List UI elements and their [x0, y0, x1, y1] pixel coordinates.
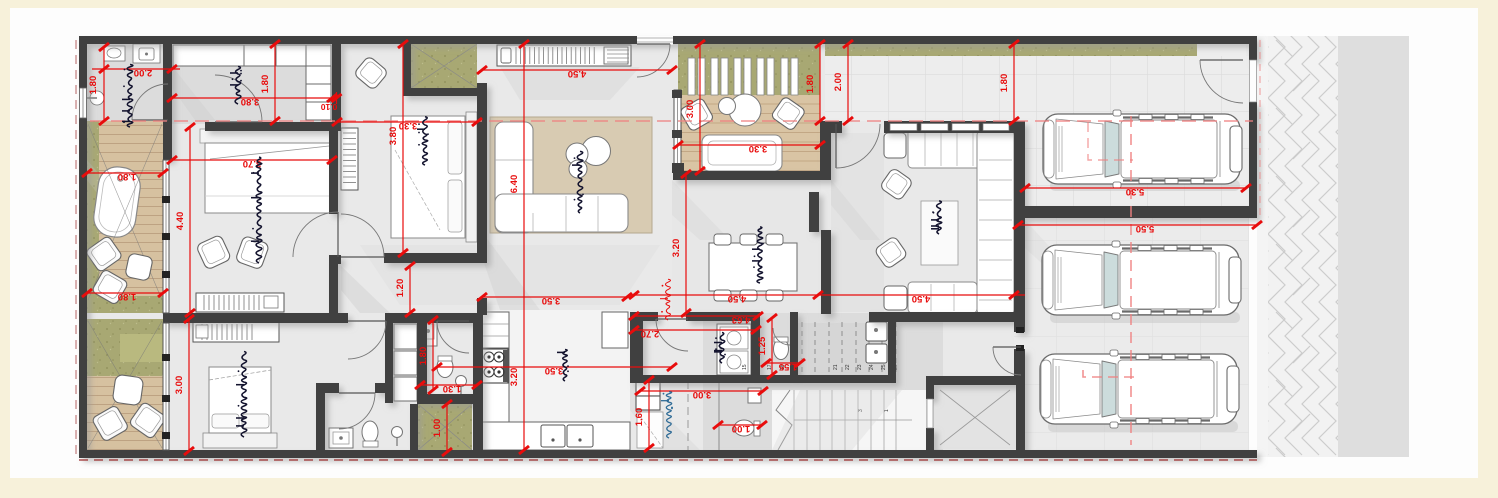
svg-text:3.00: 3.00 — [685, 100, 696, 119]
svg-text:3.00: 3.00 — [693, 389, 712, 400]
svg-text:2.00: 2.00 — [833, 73, 844, 92]
svg-text:1.80: 1.80 — [118, 291, 137, 302]
svg-text:1.55: 1.55 — [778, 361, 797, 372]
svg-text:1.60: 1.60 — [634, 408, 645, 427]
svg-text:2.70: 2.70 — [641, 328, 660, 339]
svg-text:4.50: 4.50 — [912, 293, 931, 304]
svg-text:3.80: 3.80 — [241, 96, 260, 107]
svg-text:4.50: 4.50 — [728, 293, 747, 304]
svg-text:3.50: 3.50 — [545, 365, 564, 376]
svg-text:1.80: 1.80 — [805, 75, 816, 94]
svg-text:1.25: 1.25 — [757, 336, 768, 355]
svg-text:3.30: 3.30 — [399, 120, 418, 131]
svg-text:21: 21 — [833, 364, 839, 370]
svg-text:2.00: 2.00 — [134, 67, 153, 78]
svg-text:1.80: 1.80 — [88, 76, 99, 95]
svg-text:1.00: 1.00 — [732, 423, 751, 434]
svg-text:22: 22 — [845, 364, 851, 370]
svg-text:1.80: 1.80 — [118, 171, 137, 182]
svg-text:5.30: 5.30 — [1126, 186, 1145, 197]
svg-text:1.00: 1.00 — [432, 419, 443, 438]
svg-text:25: 25 — [881, 364, 887, 370]
svg-text:3.80: 3.80 — [388, 127, 399, 146]
svg-text:1.80: 1.80 — [999, 74, 1010, 93]
svg-text:4.40: 4.40 — [175, 212, 186, 231]
svg-text:24: 24 — [869, 364, 875, 370]
svg-text:1.20: 1.20 — [395, 279, 406, 298]
svg-text:3.30: 3.30 — [749, 143, 768, 154]
svg-text:4.63: 4.63 — [732, 314, 751, 325]
svg-text:3.20: 3.20 — [671, 239, 682, 258]
svg-text:0.10: 0.10 — [320, 102, 337, 112]
svg-text:3.20: 3.20 — [509, 368, 520, 387]
svg-text:15: 15 — [742, 364, 748, 370]
svg-text:6.40: 6.40 — [509, 175, 520, 194]
svg-text:3.50: 3.50 — [542, 295, 561, 306]
svg-text:1.30: 1.30 — [443, 383, 462, 394]
svg-text:1.80: 1.80 — [260, 75, 271, 94]
svg-text:23: 23 — [857, 364, 863, 370]
svg-text:1.80: 1.80 — [418, 347, 429, 366]
svg-text:3.00: 3.00 — [174, 376, 185, 395]
svg-text:5.50: 5.50 — [1136, 223, 1155, 234]
svg-text:4.50: 4.50 — [568, 68, 587, 79]
